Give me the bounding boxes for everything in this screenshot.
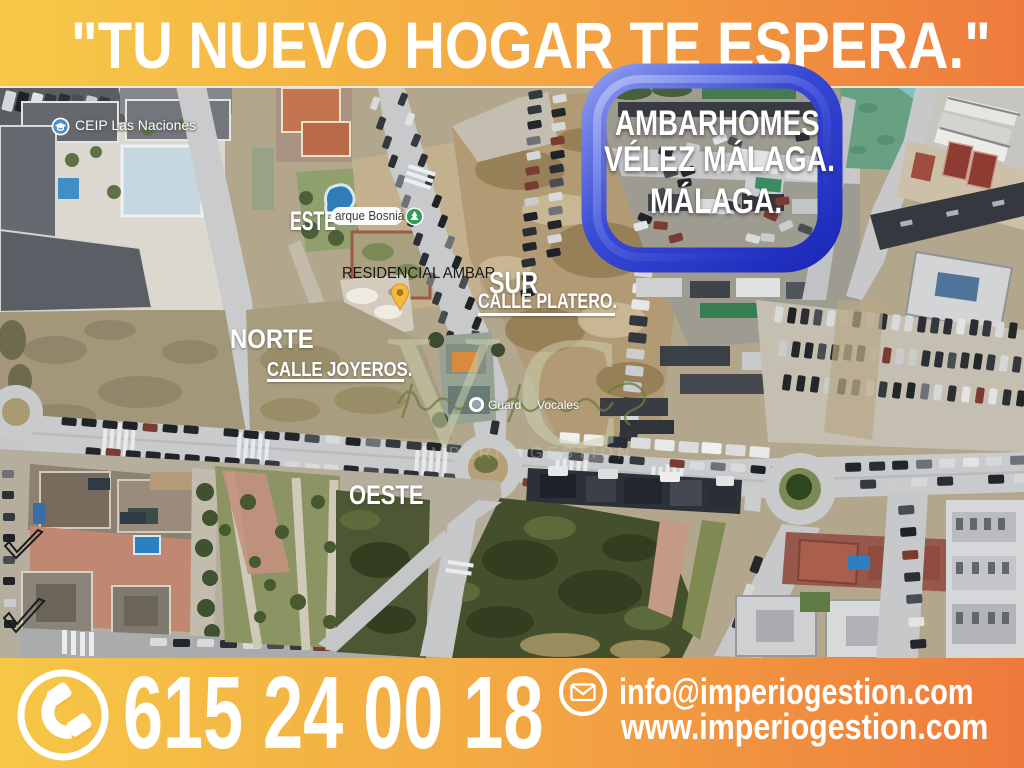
svg-text:IMPERIO GESTIÓN: IMPERIO GESTIÓN: [422, 443, 634, 462]
